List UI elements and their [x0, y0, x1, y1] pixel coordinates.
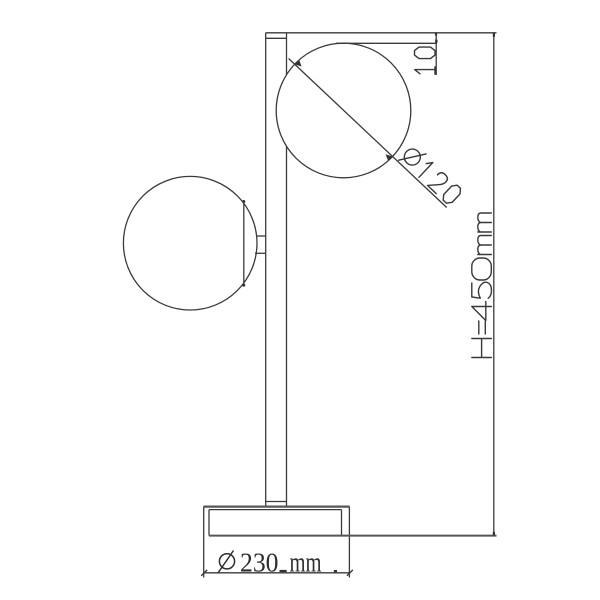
svg-text:230: 230 [240, 548, 279, 578]
svg-text:mm: mm [290, 548, 322, 579]
